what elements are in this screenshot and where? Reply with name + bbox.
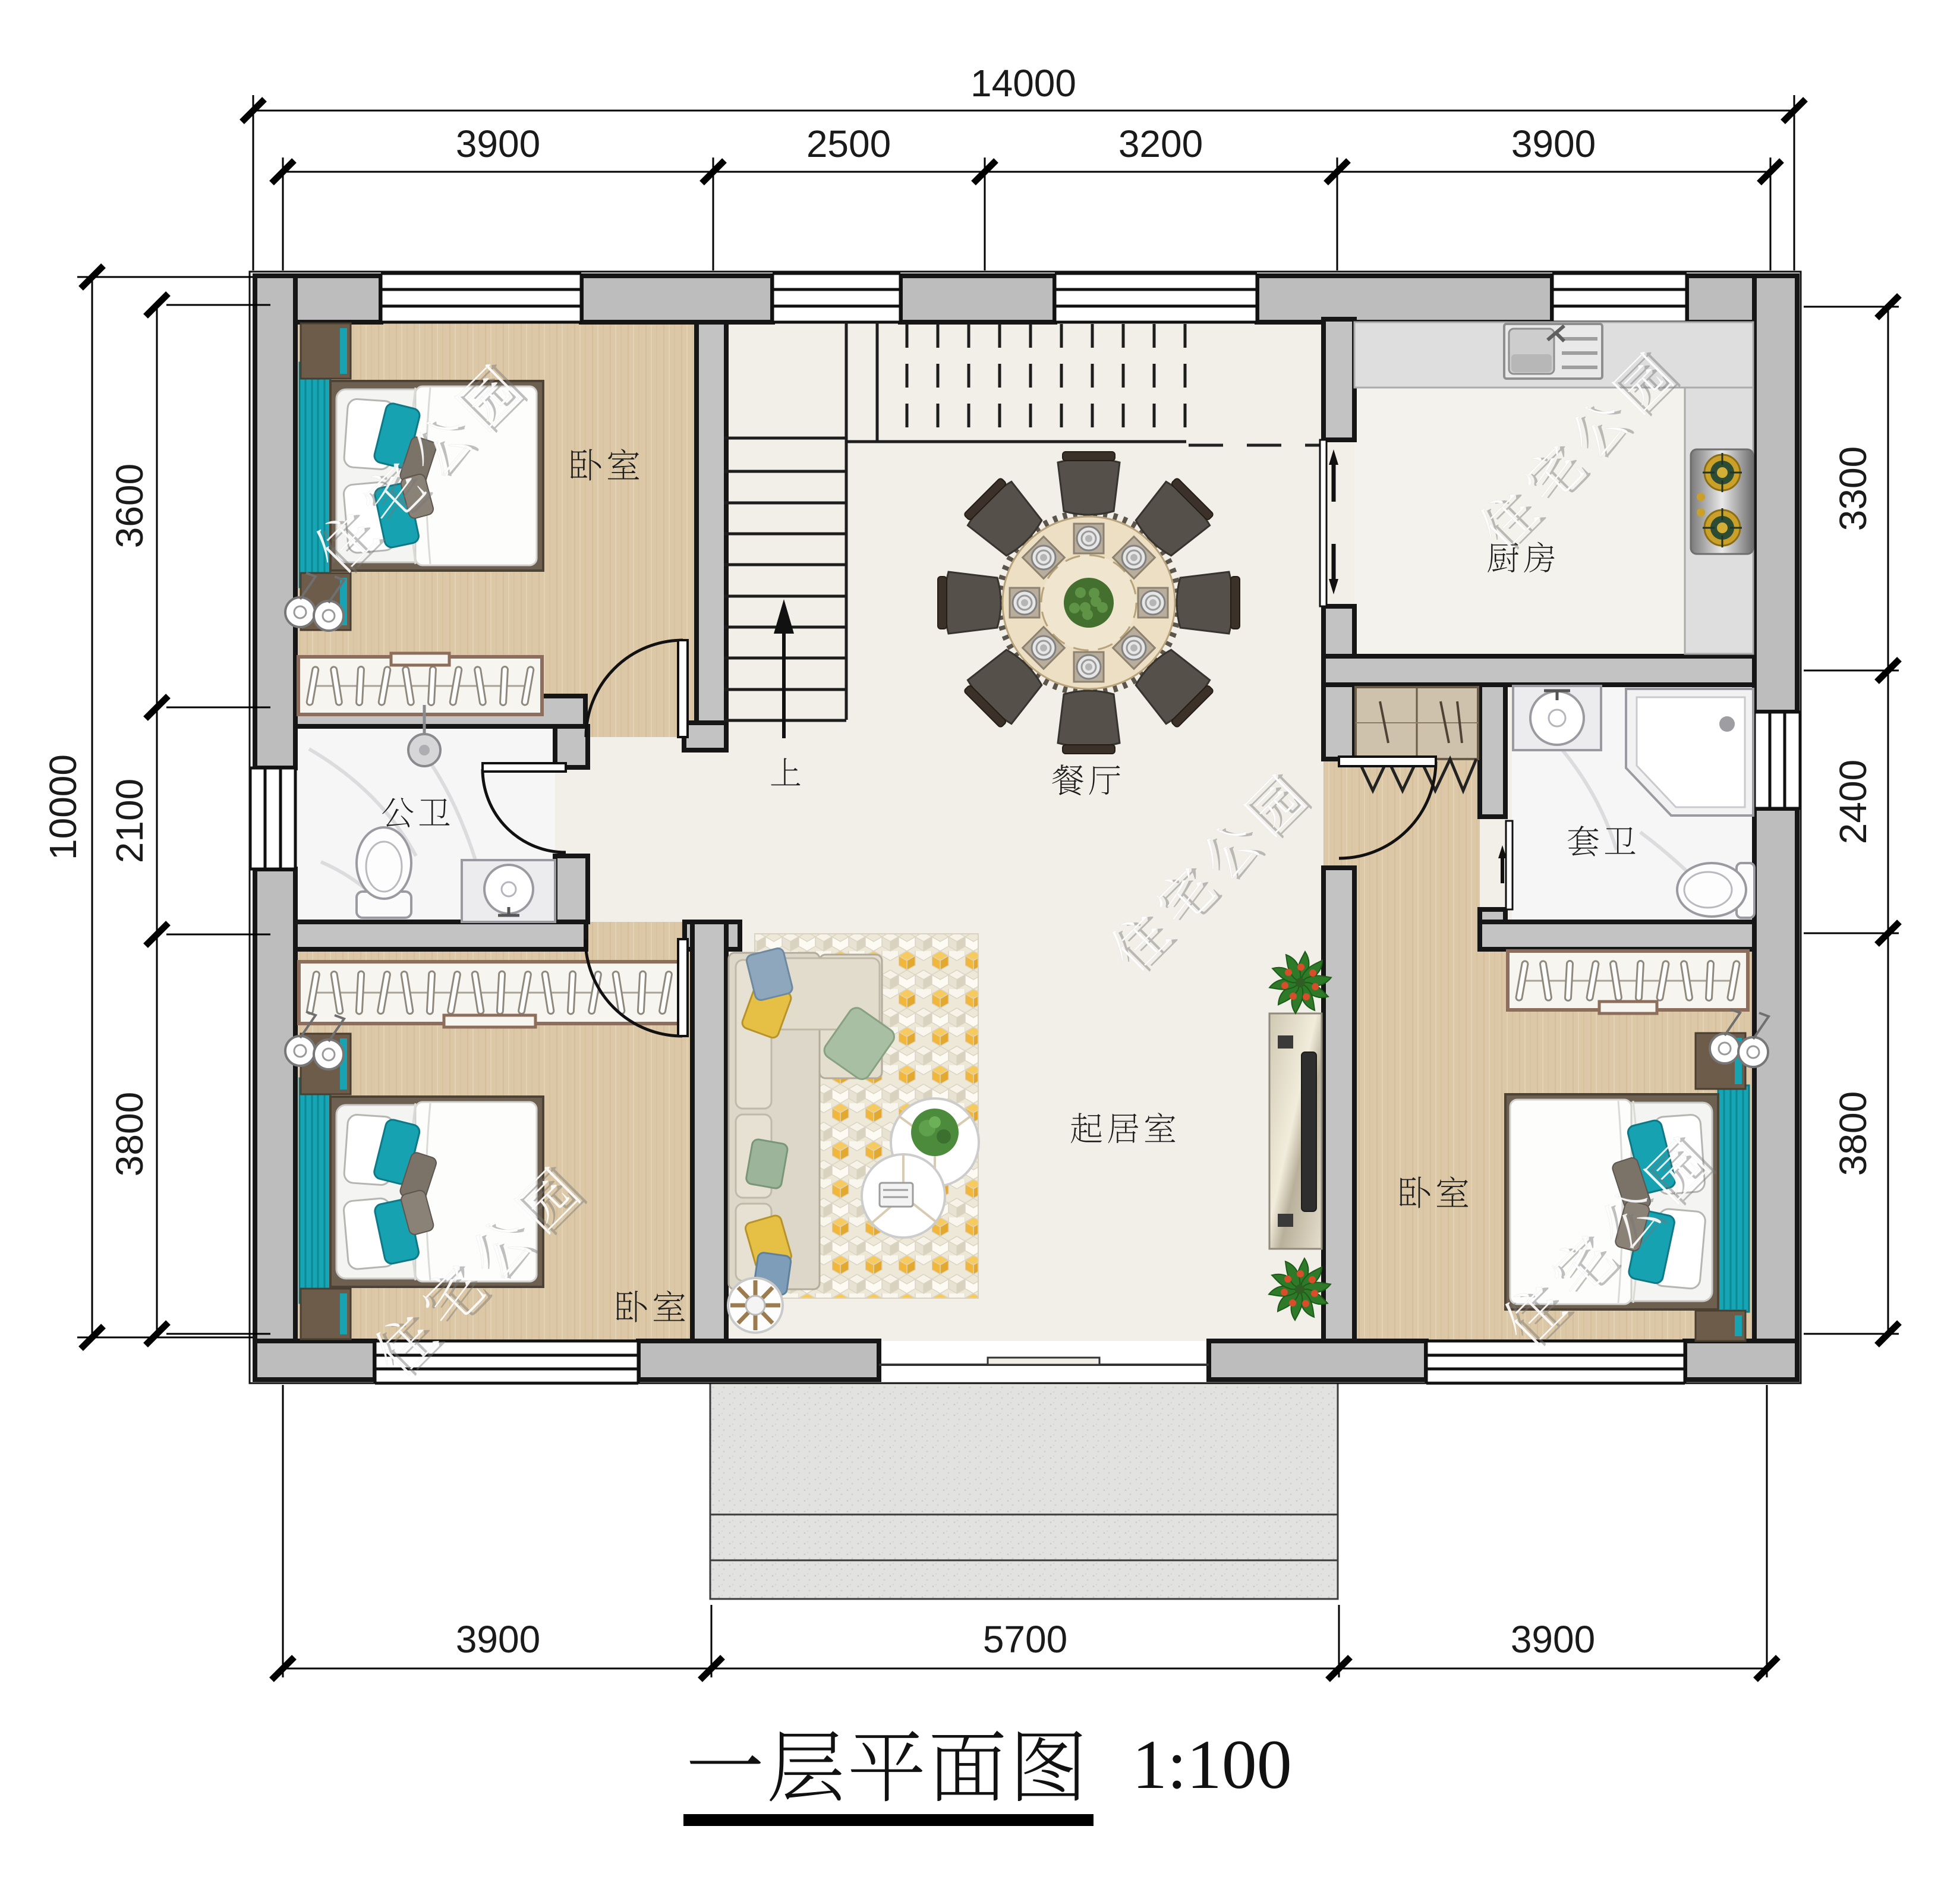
svg-text:3600: 3600 bbox=[108, 464, 151, 548]
svg-text:2500: 2500 bbox=[806, 122, 891, 165]
svg-text:3900: 3900 bbox=[1511, 1618, 1595, 1661]
svg-text:1:100: 1:100 bbox=[1132, 1726, 1292, 1803]
svg-text:3900: 3900 bbox=[456, 122, 540, 165]
svg-text:3300: 3300 bbox=[1832, 446, 1874, 531]
svg-text:5700: 5700 bbox=[983, 1618, 1067, 1661]
svg-text:10000: 10000 bbox=[42, 754, 84, 860]
svg-text:14000: 14000 bbox=[970, 62, 1076, 105]
svg-text:2100: 2100 bbox=[108, 779, 151, 863]
svg-text:3200: 3200 bbox=[1118, 122, 1203, 165]
svg-text:3800: 3800 bbox=[108, 1092, 151, 1176]
svg-text:3900: 3900 bbox=[456, 1618, 540, 1661]
svg-text:3800: 3800 bbox=[1832, 1091, 1874, 1176]
svg-text:3900: 3900 bbox=[1511, 122, 1596, 165]
svg-text:2400: 2400 bbox=[1832, 760, 1874, 844]
